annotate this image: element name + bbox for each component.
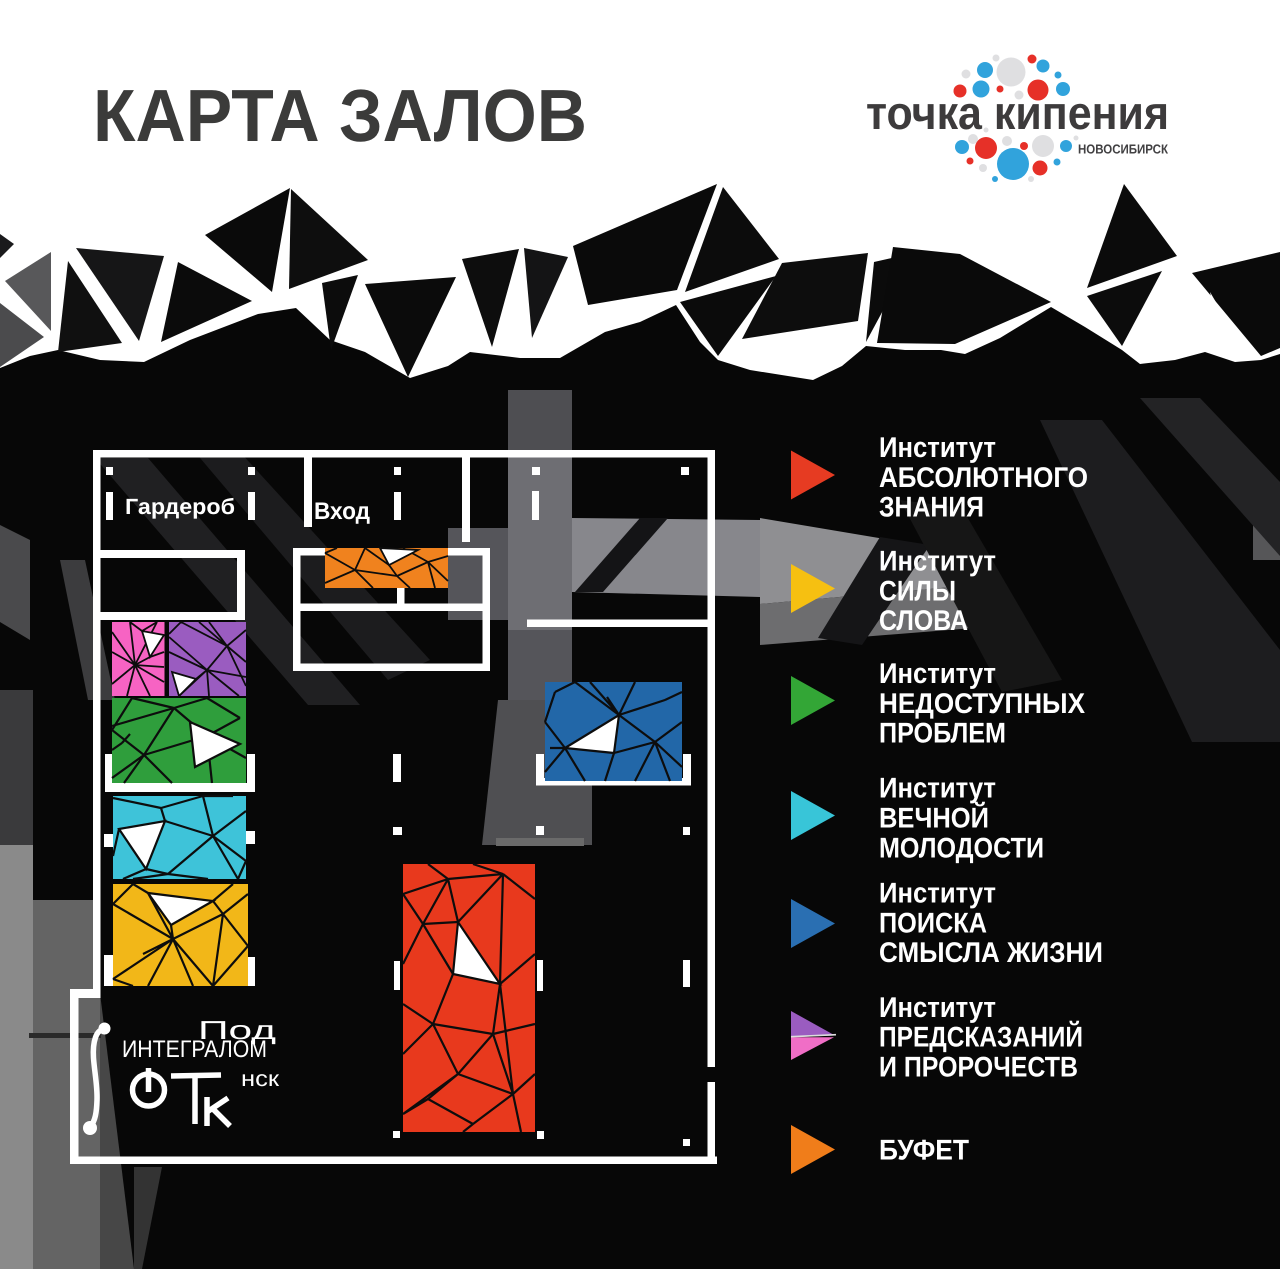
svg-text:НОВОСИБИРСК: НОВОСИБИРСК: [1078, 142, 1168, 157]
svg-text:АБСОЛЮТНОГО: АБСОЛЮТНОГО: [879, 462, 1088, 494]
svg-text:БУФЕТ: БУФЕТ: [879, 1135, 970, 1167]
svg-text:КАРТА ЗАЛОВ: КАРТА ЗАЛОВ: [93, 74, 587, 157]
svg-text:ПРЕДСКАЗАНИЙ: ПРЕДСКАЗАНИЙ: [879, 1021, 1083, 1054]
svg-text:Гардероб: Гардероб: [125, 494, 235, 519]
svg-text:нск: нск: [241, 1066, 279, 1091]
svg-text:СЛОВА: СЛОВА: [879, 605, 968, 637]
svg-text:Вход: Вход: [314, 498, 370, 525]
svg-text:Институт: Институт: [879, 432, 996, 464]
svg-text:МОЛОДОСТИ: МОЛОДОСТИ: [879, 832, 1044, 864]
svg-text:Институт: Институт: [879, 773, 996, 805]
svg-text:Институт: Институт: [879, 546, 996, 578]
svg-text:СМЫСЛА ЖИЗНИ: СМЫСЛА ЖИЗНИ: [879, 937, 1103, 969]
svg-text:ПРОБЛЕМ: ПРОБЛЕМ: [879, 718, 1006, 750]
svg-text:ИНТЕГРАЛОМ: ИНТЕГРАЛОМ: [122, 1036, 267, 1063]
svg-text:И ПРОРОЧЕСТВ: И ПРОРОЧЕСТВ: [879, 1052, 1078, 1084]
svg-text:ВЕЧНОЙ: ВЕЧНОЙ: [879, 802, 989, 835]
svg-text:Институт: Институт: [879, 992, 996, 1024]
svg-text:ПОИСКА: ПОИСКА: [879, 907, 987, 939]
svg-text:ЗНАНИЯ: ЗНАНИЯ: [879, 492, 984, 524]
svg-text:Институт: Институт: [879, 658, 996, 690]
svg-text:СИЛЫ: СИЛЫ: [879, 575, 956, 607]
svg-text:НЕДОСТУПНЫХ: НЕДОСТУПНЫХ: [879, 688, 1085, 720]
svg-text:Институт: Институт: [879, 878, 996, 910]
